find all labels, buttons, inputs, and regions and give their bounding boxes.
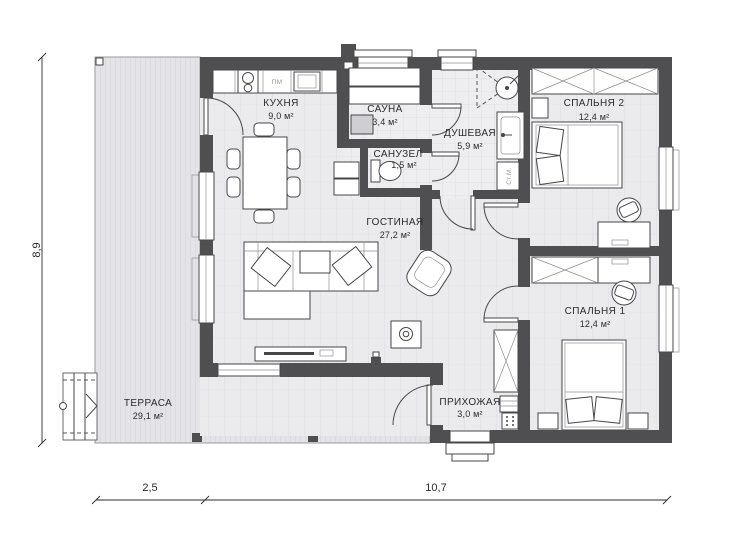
wall-living-bottom bbox=[280, 363, 443, 377]
window-bedroom2 bbox=[659, 147, 679, 210]
dimension-terrace-label: 2,5 bbox=[142, 482, 157, 494]
wall-right bbox=[659, 57, 672, 147]
wall-main-vertical bbox=[420, 57, 432, 105]
dining-chair bbox=[227, 149, 240, 169]
wardrobe-hallway bbox=[494, 330, 518, 392]
sauna-benches bbox=[349, 68, 420, 104]
wall-right bbox=[659, 210, 672, 285]
room-area-bathroom: 1,5 м² bbox=[391, 160, 416, 170]
sofa-pillow bbox=[300, 251, 330, 273]
desk-chair-bedroom1 bbox=[612, 281, 636, 305]
wall-sauna-wc-divider bbox=[337, 139, 432, 148]
desk-bedroom1 bbox=[598, 257, 650, 283]
dining-chair bbox=[254, 123, 274, 136]
pillow bbox=[566, 397, 594, 424]
wall-left bbox=[200, 57, 213, 98]
floor-plan-drawing: ПМ Ст.М. bbox=[0, 0, 740, 558]
dimension-house-label: 10,7 bbox=[425, 482, 446, 494]
tv-stand bbox=[255, 347, 346, 361]
washing-machine-label: Ст.М. bbox=[506, 167, 513, 184]
window-shower bbox=[438, 50, 476, 70]
dining-table bbox=[243, 137, 287, 209]
dimension-bottom: 2,5 10,7 bbox=[92, 482, 671, 504]
nightstand-bedroom1 bbox=[538, 413, 558, 429]
wardrobe-bedroom1 bbox=[532, 257, 598, 283]
kitchen-tall-units bbox=[334, 162, 359, 195]
room-area-hallway: 3,0 м² bbox=[457, 409, 482, 419]
room-label-terrace: ТЕРРАСА bbox=[124, 398, 172, 409]
wall-bedrooms bbox=[518, 320, 530, 430]
wall-hall-left bbox=[430, 425, 443, 443]
terrace-corner-marker bbox=[96, 58, 103, 65]
dishwasher-label: ПМ bbox=[272, 79, 283, 86]
room-area-living: 27,2 м² bbox=[380, 230, 411, 240]
wall-left bbox=[200, 135, 213, 172]
dining-chair bbox=[227, 177, 240, 197]
room-label-bathroom: САНУЗЕЛ bbox=[373, 149, 422, 160]
nightstand-bedroom1 bbox=[628, 413, 648, 429]
desk-chair-bedroom2 bbox=[617, 198, 641, 222]
stairs bbox=[60, 373, 98, 440]
washing-machine: Ст.М. bbox=[497, 162, 519, 190]
wall-left bbox=[200, 240, 213, 255]
room-area-shower: 5,9 м² bbox=[457, 141, 482, 151]
entrance-porch bbox=[446, 431, 494, 461]
wall-sauna-left bbox=[337, 57, 349, 147]
room-label-bedroom1: СПАЛЬНЯ 1 bbox=[565, 306, 626, 317]
dining-chair bbox=[287, 149, 300, 169]
dining-chair bbox=[287, 177, 300, 197]
window-bedroom1 bbox=[659, 285, 679, 352]
wall-post bbox=[371, 357, 381, 366]
wall-hall-left bbox=[430, 377, 443, 385]
dimension-height-label: 8,9 bbox=[31, 242, 43, 257]
kitchen-counter: ПМ bbox=[213, 70, 337, 93]
wall-post-cap bbox=[373, 352, 379, 357]
room-label-shower: ДУШЕВАЯ bbox=[444, 128, 496, 139]
bed-bedroom1 bbox=[562, 340, 626, 430]
pillow bbox=[594, 397, 622, 424]
room-label-kitchen: КУХНЯ bbox=[263, 98, 298, 109]
room-area-bedroom2: 12,4 м² bbox=[579, 112, 610, 122]
window-living-bottom bbox=[218, 364, 280, 376]
wall-bedrooms bbox=[518, 238, 530, 287]
wardrobe-bedroom2 bbox=[532, 68, 658, 94]
wall-shower-bottom bbox=[473, 190, 518, 199]
floor-plan: ПМ Ст.М. bbox=[0, 0, 740, 558]
pillow bbox=[536, 155, 563, 184]
bed-bedroom2 bbox=[532, 122, 622, 188]
tv bbox=[264, 352, 314, 355]
sauna-stove bbox=[351, 115, 373, 134]
room-area-bedroom1: 12,4 м² bbox=[580, 319, 611, 329]
nightstand-bedroom2 bbox=[532, 98, 548, 118]
pillow bbox=[536, 126, 563, 155]
wall-shower-bottom bbox=[432, 190, 440, 199]
room-label-living: ГОСТИНАЯ bbox=[366, 217, 423, 228]
window-sauna bbox=[354, 50, 412, 70]
dimension-left: 8,9 bbox=[31, 53, 46, 447]
wall-right bbox=[659, 352, 672, 443]
shoe-cabinet bbox=[500, 396, 518, 429]
room-label-hallway: ПРИХОЖАЯ bbox=[439, 397, 500, 408]
room-area-sauna: 3,4 м² bbox=[372, 117, 397, 127]
room-area-kitchen: 9,0 м² bbox=[268, 111, 293, 121]
fireplace bbox=[391, 321, 421, 348]
room-label-bedroom2: СПАЛЬНЯ 2 bbox=[564, 98, 625, 109]
desk-bedroom2 bbox=[598, 222, 650, 248]
dining-chair bbox=[254, 210, 274, 223]
sink-vanity bbox=[497, 112, 524, 159]
wall-living-bottom bbox=[200, 363, 218, 377]
stairs-pole bbox=[60, 403, 67, 410]
room-label-sauna: САУНА bbox=[367, 104, 402, 115]
room-area-terrace: 29,1 м² bbox=[133, 411, 164, 421]
wall-bottom bbox=[490, 430, 672, 443]
